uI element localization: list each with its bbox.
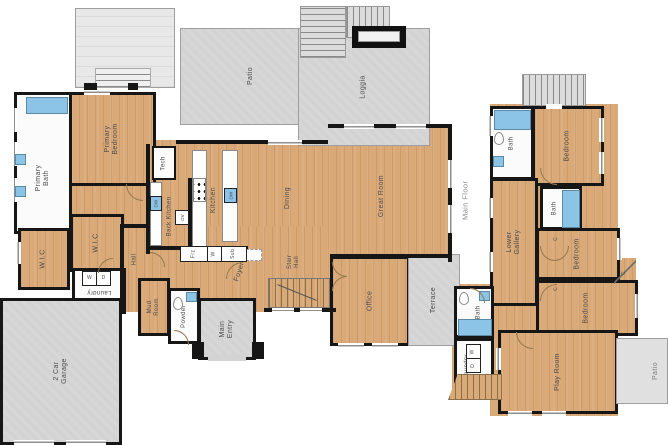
wall-segment xyxy=(330,254,452,258)
floor-label: Main Floor xyxy=(462,180,471,219)
entry-pier xyxy=(192,342,204,359)
cooktop xyxy=(193,178,206,202)
sink xyxy=(15,186,26,197)
wine-label: W xyxy=(212,251,218,256)
primary-bedroom: Primary Bedroom xyxy=(68,92,156,186)
kitchen-label: Kitchen xyxy=(210,187,218,213)
dining-label: Dining xyxy=(284,187,292,209)
washer-label: W xyxy=(87,276,92,282)
great-room-label-box: Great Room xyxy=(371,172,393,220)
garage-label: 2 Car Garage xyxy=(53,355,69,389)
window xyxy=(599,118,604,142)
washer-box-right: W xyxy=(466,344,481,359)
lower-gallery: Lower Gallery xyxy=(490,178,538,306)
loggia-label: Loggia xyxy=(360,75,368,98)
hall-label-box: Hall xyxy=(124,238,146,280)
kitchen-label-box: Kitchen xyxy=(203,178,225,222)
window xyxy=(488,116,493,136)
floor-plan: Patio Loggia Primary Bedroom Primary Bat… xyxy=(0,0,668,445)
patio-right: Patio xyxy=(616,338,668,404)
closet-label-box: C xyxy=(620,268,630,278)
primary-bath-label: Primary Bath xyxy=(35,161,51,195)
mud-room-label: Mud Room xyxy=(147,295,161,319)
bath-mid-label: Bath xyxy=(552,201,559,215)
window xyxy=(617,238,622,260)
bedroom-mid-label: Bedroom xyxy=(574,238,582,269)
stair-hall-label-box: Stair Hall xyxy=(283,248,305,276)
tech-label: Tech xyxy=(161,156,168,170)
back-kitchen-label: Back Kitchen xyxy=(167,196,174,236)
bath-lower-label: Bath xyxy=(476,305,483,319)
window xyxy=(635,294,640,318)
main-entry-label: Main Entry xyxy=(219,315,235,343)
window xyxy=(496,348,501,370)
bath-upper-label: Bath xyxy=(509,136,516,150)
dw-label: DW xyxy=(228,192,233,200)
window xyxy=(542,411,566,416)
toilet xyxy=(494,132,504,145)
hall-label: Hall xyxy=(132,253,139,265)
primary-bath-label-box: Primary Bath xyxy=(22,158,64,198)
shower xyxy=(458,319,492,336)
window xyxy=(272,308,294,313)
wall-segment xyxy=(176,140,328,144)
window xyxy=(16,242,21,264)
window xyxy=(488,252,493,272)
window xyxy=(396,124,426,129)
play-room: Play Room xyxy=(498,330,618,414)
window xyxy=(300,308,322,313)
shower xyxy=(494,110,531,130)
deck-pier xyxy=(128,83,138,90)
sink xyxy=(493,156,504,167)
primary-bedroom-label: Primary Bedroom xyxy=(104,118,120,160)
office-label: Office xyxy=(366,291,374,312)
patio-right-label: Patio xyxy=(652,362,660,380)
freezer-label: Frz xyxy=(191,250,197,258)
garage-door xyxy=(14,440,54,445)
sink xyxy=(186,292,197,302)
bedroom-lower-label: Bedroom xyxy=(583,292,591,323)
wic-top-label: W.I.C xyxy=(93,233,101,252)
deck-pier xyxy=(84,83,97,90)
bedroom-upper-door xyxy=(546,104,562,109)
floor-label-box: Main Floor xyxy=(456,158,476,242)
dining-label-box: Dining xyxy=(278,176,298,220)
wic-top: W.I.C xyxy=(70,214,124,272)
dryer-label: D xyxy=(471,364,477,368)
wall-segment xyxy=(120,224,150,228)
window xyxy=(508,411,532,416)
window xyxy=(448,160,453,188)
wall-segment xyxy=(448,124,452,262)
main-entry: Main Entry xyxy=(198,298,256,360)
garage-door xyxy=(66,440,106,445)
window xyxy=(338,343,364,348)
freezer-box: Frz xyxy=(180,246,208,262)
window xyxy=(12,108,17,132)
closet-label: C xyxy=(622,271,628,275)
dryer-box: D xyxy=(96,271,111,286)
tech-room: Tech xyxy=(152,146,176,180)
window xyxy=(344,124,374,129)
toilet xyxy=(459,292,469,305)
entry-pier xyxy=(252,342,264,359)
dryer-label: D xyxy=(102,276,106,282)
window xyxy=(372,343,398,348)
outdoor-fireplace xyxy=(352,26,406,48)
washer-box: W xyxy=(82,271,97,286)
terrace-label: Terrace xyxy=(430,287,438,313)
wic-left: W.I.C xyxy=(18,228,70,290)
window xyxy=(268,140,302,145)
dryer-box-right: D xyxy=(466,358,481,373)
ov-label: OV xyxy=(179,214,184,221)
bathtub xyxy=(26,97,68,114)
toilet xyxy=(173,297,183,310)
window xyxy=(84,90,110,95)
play-room-label: Play Room xyxy=(554,353,562,391)
patio-label: Patio xyxy=(247,68,255,86)
closet-label: C xyxy=(554,237,560,241)
oven-box: OV xyxy=(175,210,189,225)
washer-label: W xyxy=(471,349,477,354)
sink xyxy=(15,154,26,165)
entry-opening xyxy=(208,355,246,361)
lower-gallery-label: Lower Gallery xyxy=(506,225,522,259)
window xyxy=(448,205,453,233)
deck-steps xyxy=(95,68,151,88)
window xyxy=(599,152,604,174)
garage: 2 Car Garage xyxy=(0,298,122,445)
great-room-label: Great Room xyxy=(378,175,386,217)
bedroom-upper-label: Bedroom xyxy=(564,130,572,161)
terrace: Terrace xyxy=(408,254,460,346)
window xyxy=(488,198,493,218)
island-dw: DW xyxy=(224,188,237,203)
dw-label: DW xyxy=(153,200,158,208)
loggia-stair xyxy=(300,6,346,58)
stair-hall-label: Stair Hall xyxy=(287,251,301,273)
shower xyxy=(562,190,580,228)
back-kitchen-dw: DW xyxy=(150,196,162,211)
mud-room: Mud Room xyxy=(138,278,170,336)
right-exterior-stair xyxy=(522,74,586,106)
wic-left-label: W.I.C xyxy=(40,249,48,268)
laundry-label: Laundry xyxy=(87,288,111,295)
closet-label-box: C xyxy=(552,234,562,244)
fireplace-hearth xyxy=(358,31,400,42)
